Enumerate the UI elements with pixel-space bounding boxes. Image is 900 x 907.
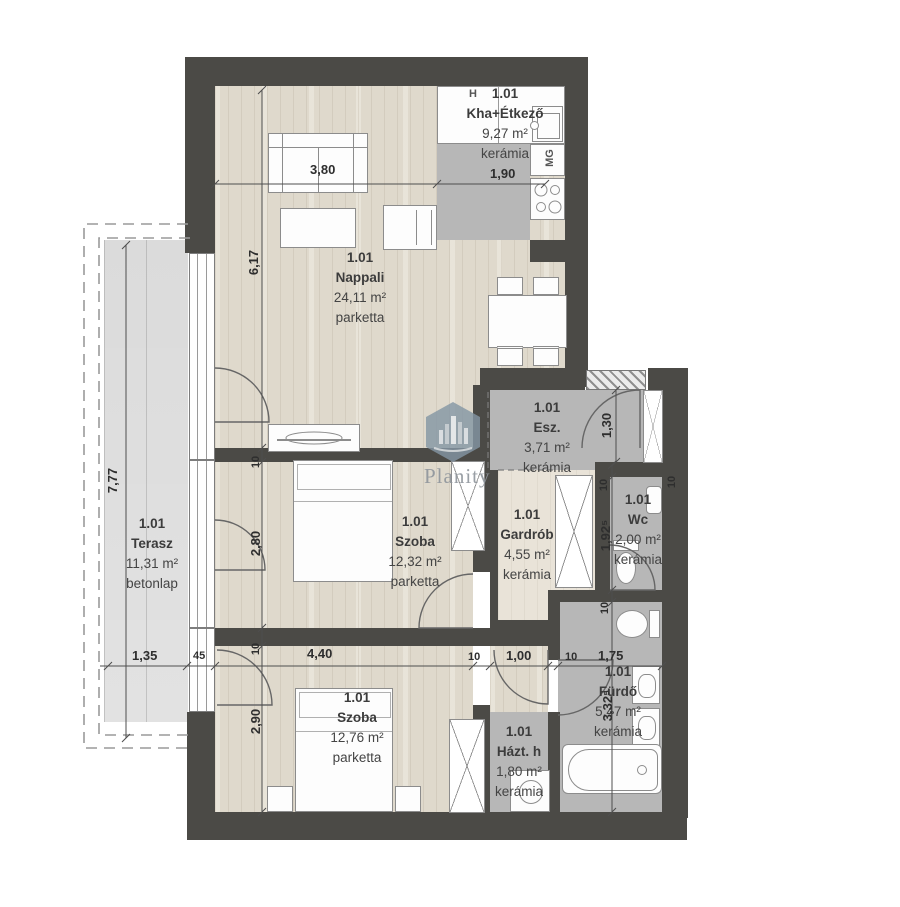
room-id: 1.01 [568,490,708,510]
room-id: 1.01 [287,688,427,708]
room-id: 1.01 [435,84,575,104]
dim-wall-10: 10 [599,602,611,614]
fridge-label: H [469,88,477,100]
dim-wall-10: 10 [565,651,577,663]
room-name: Szoba [287,708,427,728]
room-floor: kerámia [568,550,708,570]
room-name: Fürdő [548,682,688,702]
room-id: 1.01 [290,248,430,268]
room-area: 24,11 m² [290,288,430,308]
dim-living-width: 3,80 [310,162,335,177]
dim-bathroom-width: 1,75 [598,648,623,663]
room-floor: parketta [287,748,427,768]
dishwasher-label: MG [544,149,556,167]
dim-wall-10: 10 [250,643,262,655]
dim-living-height: 6,17 [246,250,261,275]
dim-bedroom2-width: 4,40 [307,646,332,661]
room-area: 5,47 m² [548,702,688,722]
label-utility: 1.01 Házt. h 1,80 m² kerámia [449,722,589,802]
dim-hall-width: 1,00 [506,648,531,663]
room-name: Esz. [477,418,617,438]
dim-entry-depth: 1,30 [599,413,614,438]
room-floor: parketta [290,308,430,328]
room-area: 2,00 m² [568,530,708,550]
dim-wall-10: 10 [250,456,262,468]
dim-wall-45: 45 [193,650,205,662]
dim-bathroom-height: 3,32⁵ [600,690,615,721]
room-name: Wc [568,510,708,530]
room-name: Terasz [82,534,222,554]
door-swing-living-terrace [215,368,269,422]
label-living: 1.01 Nappali 24,11 m² parketta [290,248,430,328]
dim-wc-height: 1,92⁵ [598,520,613,551]
dim-kitchen-width: 1,90 [490,166,515,181]
watermark-logo [422,400,484,466]
room-area: 9,27 m² [435,124,575,144]
room-name: Nappali [290,268,430,288]
room-floor: kerámia [449,782,589,802]
dim-terrace-height: 7,77 [105,468,120,493]
label-wc: 1.01 Wc 2,00 m² kerámia [568,490,708,570]
dim-terrace-width: 1,35 [132,648,157,663]
label-bedroom2: 1.01 Szoba 12,76 m² parketta [287,688,427,768]
label-terrace: 1.01 Terasz 11,31 m² betonlap [82,514,222,594]
dim-bedroom2-height: 2,90 [248,709,263,734]
floor-plan: Planity 1.01 Kha+Étkező 9,27 m² kerámia … [0,0,900,907]
room-area: 11,31 m² [82,554,222,574]
dim-bedroom1-height: 2,80 [248,531,263,556]
dim-wall-10: 10 [468,651,480,663]
watermark-text: Planity [424,464,491,489]
label-esz: 1.01 Esz. 3,71 m² kerámia [477,398,617,478]
room-name: Házt. h [449,742,589,762]
room-id: 1.01 [82,514,222,534]
room-id: 1.01 [548,662,688,682]
room-area: 12,76 m² [287,728,427,748]
room-area: 3,71 m² [477,438,617,458]
room-area: 1,80 m² [449,762,589,782]
room-floor: kerámia [477,458,617,478]
dim-wall-10: 10 [666,476,678,488]
room-id: 1.01 [449,722,589,742]
room-name: Kha+Étkező [435,104,575,124]
dim-wall-10: 10 [598,479,610,491]
door-swing-bedroom2-terrace [217,650,272,705]
room-id: 1.01 [477,398,617,418]
room-floor: betonlap [82,574,222,594]
